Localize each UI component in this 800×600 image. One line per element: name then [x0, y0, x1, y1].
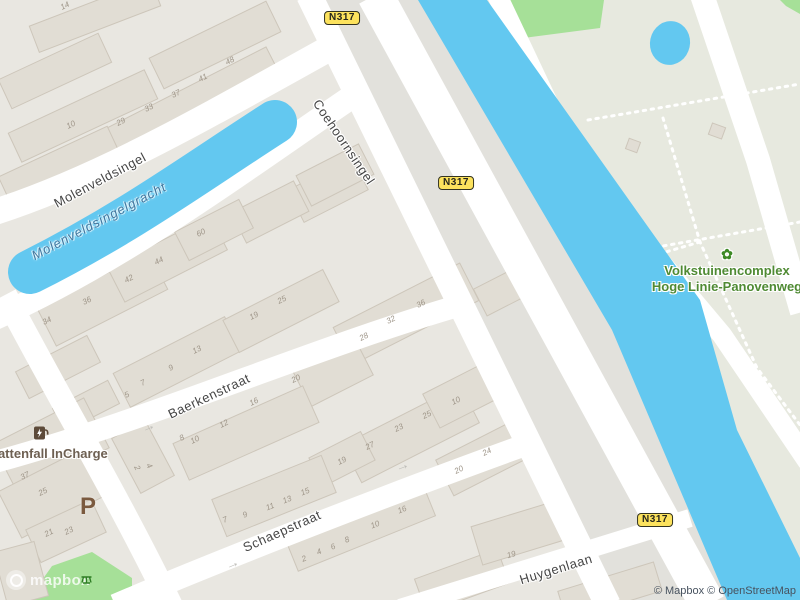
garden-label-line1: Volkstuinencomplex — [617, 263, 800, 279]
street-label-coehoornsingel: Coehoornsingel — [310, 97, 378, 188]
charging-station-label: Vattenfall InCharge — [0, 446, 108, 461]
route-badge-n317: N317 — [438, 176, 474, 190]
map-canvas[interactable]: 1014293337414834364244601925139753632281… — [0, 0, 800, 600]
ev-charging-icon — [33, 425, 49, 447]
route-badge-n317: N317 — [324, 11, 360, 25]
street-label-baerkenstraat: Baerkenstraat — [166, 370, 253, 421]
parking-label: P — [80, 493, 96, 521]
route-badge-n317: N317 — [637, 513, 673, 527]
allotment-garden-label: ✿ Volkstuinencomplex Hoge Linie-Panovenw… — [617, 248, 800, 295]
oneway-arrow-icon: → — [138, 416, 157, 436]
oneway-arrow-icon: → — [393, 455, 412, 475]
street-label-molenveldsingel: Molenveldsingel — [51, 149, 148, 210]
oneway-arrow-icon: → — [222, 553, 241, 573]
map-attribution[interactable]: © Mapbox © OpenStreetMap — [654, 585, 796, 597]
street-label-huygenlaan: Huygenlaan — [518, 551, 594, 587]
garden-flower-icon: ✿ — [617, 248, 800, 261]
map-labels-layer: ✿ Volkstuinencomplex Hoge Linie-Panovenw… — [0, 0, 800, 600]
garden-label-line2: Hoge Linie-Panovenweg — [617, 279, 800, 295]
street-label-schaepstraat: Schaepstraat — [241, 507, 324, 555]
mapbox-logo-icon — [6, 570, 26, 590]
mapbox-logo[interactable]: mapbox — [6, 570, 90, 590]
picnic-site-icon — [80, 572, 93, 590]
water-label-molenveldsingelgracht: Molenveldsingelgracht — [29, 179, 169, 263]
